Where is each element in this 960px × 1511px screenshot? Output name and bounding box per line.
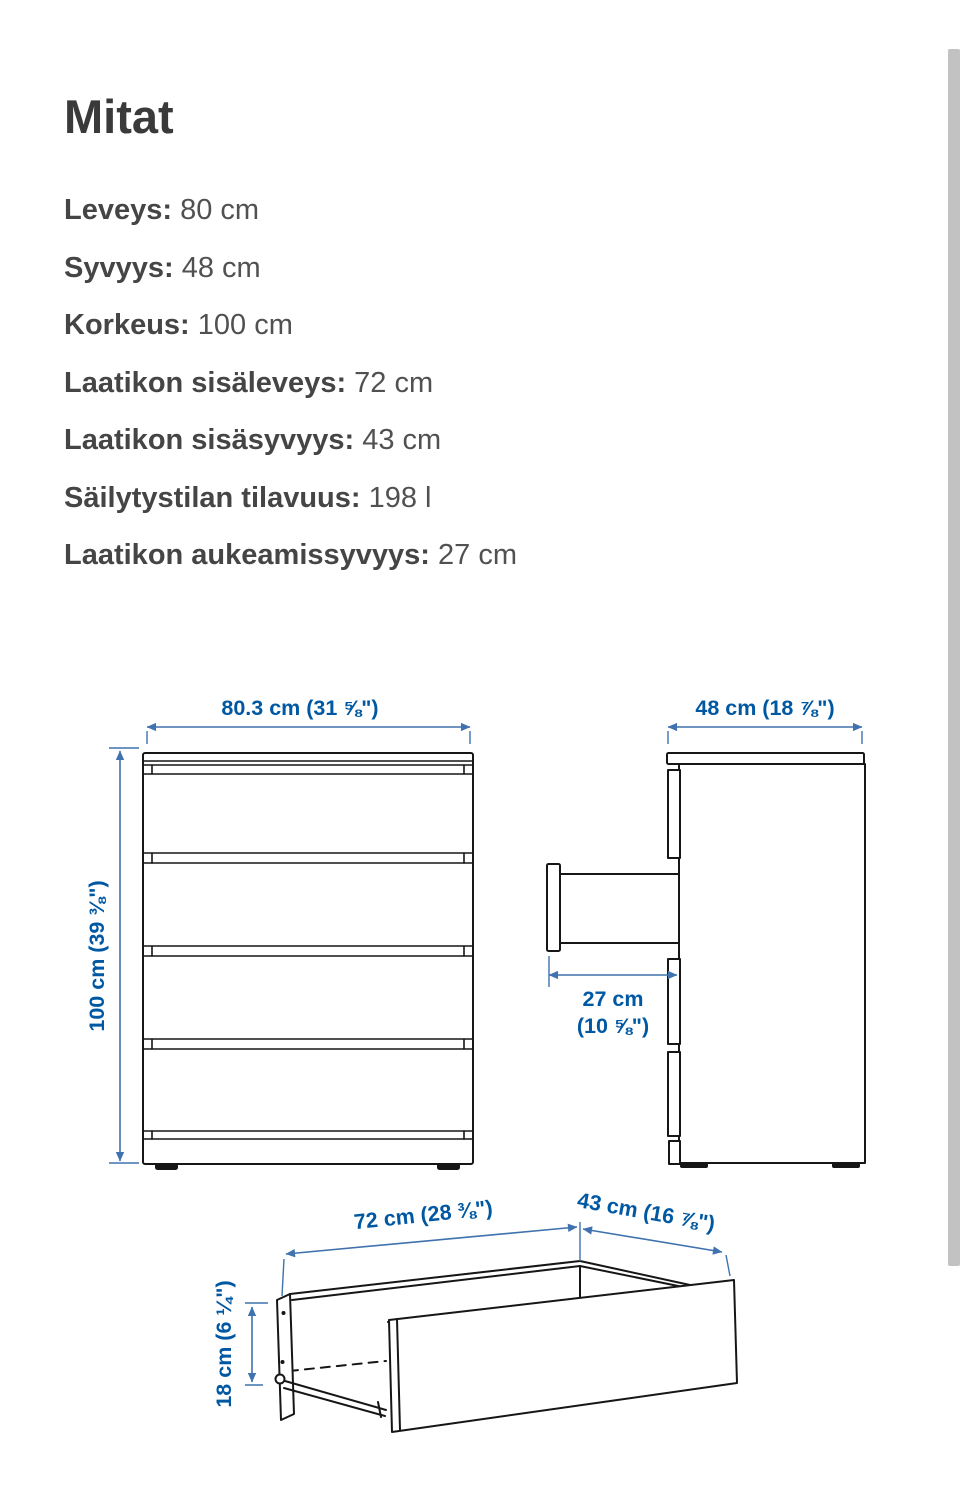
side-depth-dimension-label: 48 cm (18 ⅞") (695, 696, 834, 720)
front-foot (155, 1163, 178, 1170)
scrollbar-thumb[interactable] (948, 49, 960, 1266)
front-view-drawing: 80.3 cm (31 ⅝") 100 cm (39 ⅜") (85, 696, 473, 1170)
open-drawer-body (558, 874, 679, 943)
side-foot (832, 1162, 860, 1168)
front-width-dimension-label: 80.3 cm (31 ⅝") (221, 696, 378, 720)
dimensions-diagram: 80.3 cm (31 ⅝") 100 cm (39 ⅜") (0, 0, 960, 1511)
drawer-height-dimension-label: 18 cm (6 ¼") (212, 1280, 236, 1407)
drawer-back-panel (277, 1294, 294, 1420)
front-foot (437, 1163, 460, 1170)
side-view-drawing: 48 cm (18 ⅞") 27 cm (10 ⅝") (547, 696, 865, 1168)
drawer-3d-drawing: 72 cm (28 ⅜") 43 cm (16 ⅞") 18 cm (6 ¼") (212, 1188, 737, 1432)
drawer-front-panel (389, 1280, 737, 1432)
open-depth-dimension-label-line1: 27 cm (583, 987, 644, 1011)
drawer-width-dimension-label: 72 cm (28 ⅜") (353, 1196, 494, 1234)
drawer-depth-dimension-label: 43 cm (16 ⅞") (576, 1188, 717, 1236)
front-height-dimension-label: 100 cm (39 ⅜") (85, 880, 109, 1031)
side-foot (680, 1162, 708, 1168)
open-depth-dimension-label-line2: (10 ⅝") (577, 1014, 649, 1038)
open-drawer-front (547, 864, 560, 951)
